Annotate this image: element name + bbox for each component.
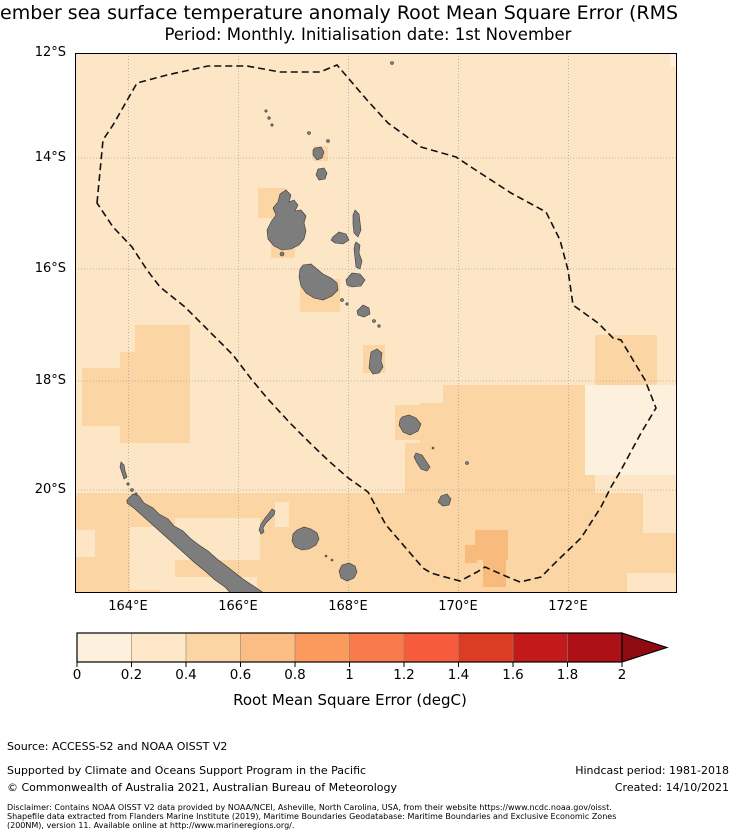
copyright-text: © Commonwealth of Australia 2021, Austra… [7,781,397,794]
island-speck [341,299,344,302]
lon-tick-label: 172°E [548,599,588,614]
lon-tick-label: 170°E [438,599,478,614]
island-efate [369,349,383,374]
lon-tick-label: 166°E [218,599,258,614]
island-speck [331,559,333,561]
figure-subtitle: Period: Monthly. Initialisation date: 1s… [0,25,736,44]
colorbar-tick-label: 1.4 [448,667,469,683]
disclaimer-line-3: (200NM), version 11. Available online at… [7,821,294,831]
colorbar [0,620,736,670]
source-text: Source: ACCESS-S2 and NOAA OISST V2 [7,740,227,753]
colorbar-axis-label: Root Mean Square Error (degC) [0,691,700,709]
lat-tick-label: 20°S [14,482,66,498]
island-shepherd [373,320,376,323]
island-speck [432,447,434,449]
island-speck [127,483,129,485]
created-date-text: Created: 14/10/2021 [615,781,729,794]
island-shepherd [378,325,381,328]
colorbar-tick-label: 1.6 [502,667,523,683]
island-banks [308,132,311,135]
colorbar-tick-label: 0.6 [230,667,251,683]
colorbar-tick-label: 0.4 [175,667,196,683]
island-gaua [316,168,327,180]
figure-title: ember sea surface temperature anomaly Ro… [0,2,736,24]
colorbar-graphic [0,620,736,670]
lat-tick-label: 12°S [14,45,66,61]
colorbar-tick-label: 2 [618,667,627,683]
island-banks [327,140,330,143]
colorbar-tick-label: 0.8 [284,667,305,683]
island-speck [325,555,327,557]
hindcast-period-text: Hindcast period: 1981-2018 [575,764,729,777]
lat-tick-label: 14°S [14,150,66,166]
island-speck [131,489,134,492]
island-torres [265,110,267,112]
supported-text: Supported by Climate and Oceans Support … [7,764,366,777]
sst-rmse-map [75,53,677,593]
lat-tick-label: 18°S [14,373,66,389]
island-speck [391,62,394,65]
lon-tick-label: 168°E [328,599,368,614]
colorbar-tick-label: 1.2 [393,667,414,683]
figure: ember sea surface temperature anomaly Ro… [0,0,736,839]
colorbar-tick-label: 1.8 [557,667,578,683]
colorbar-tick-label: 0 [73,667,82,683]
colorbar-over-arrow [622,633,667,662]
island-malo [280,252,284,256]
map-canvas [75,53,677,593]
lat-tick-label: 16°S [14,261,66,277]
island-speck [466,462,469,465]
island-torres [268,117,271,120]
colorbar-tick-label: 1 [345,667,354,683]
colorbar-tick-label: 0.2 [121,667,142,683]
lon-tick-label: 164°E [108,599,148,614]
island-torres [271,124,273,126]
island-speck [346,303,348,305]
